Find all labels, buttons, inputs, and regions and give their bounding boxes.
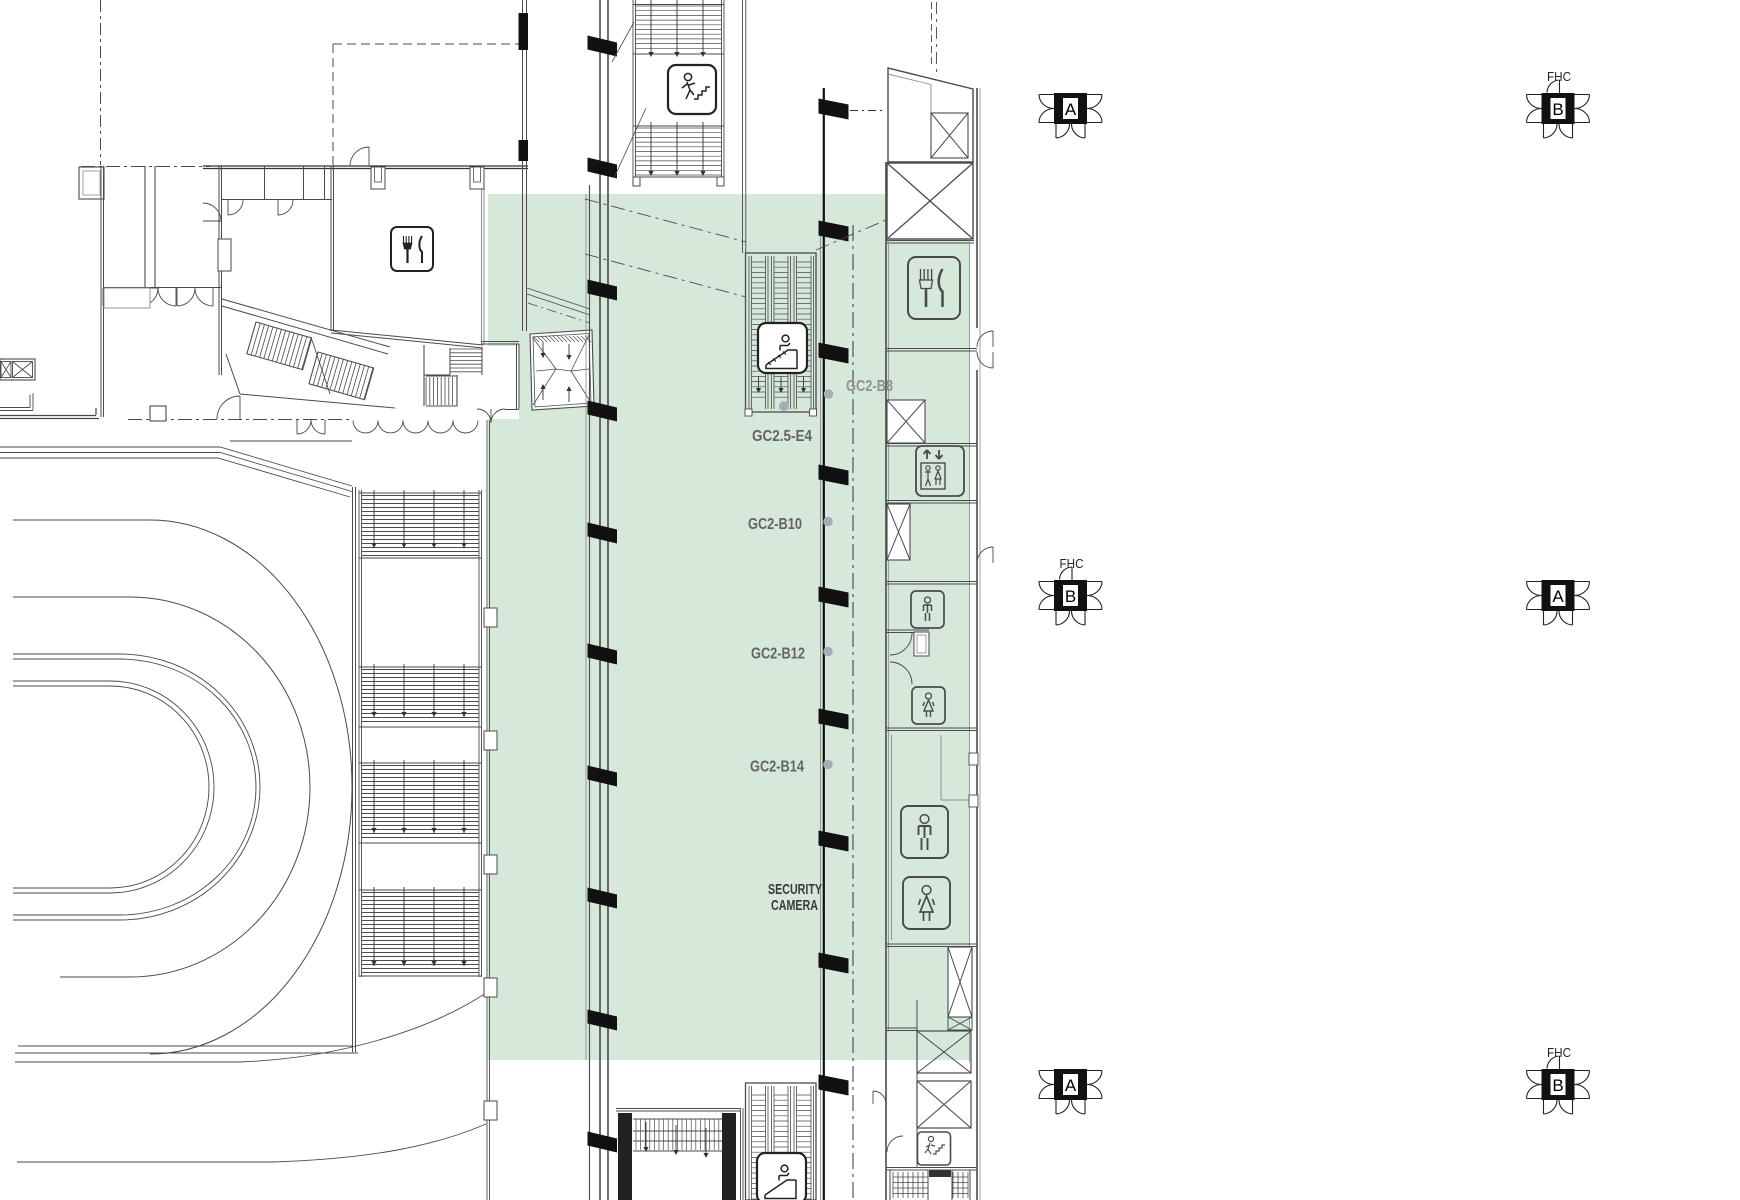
- svg-text:FHC: FHC: [1547, 69, 1571, 84]
- svg-text:GC2-B10: GC2-B10: [748, 516, 802, 533]
- svg-text:GC2-B14: GC2-B14: [750, 759, 804, 776]
- svg-text:FHC: FHC: [1060, 556, 1084, 571]
- svg-text:SECURITY: SECURITY: [768, 881, 822, 898]
- svg-text:A: A: [1552, 587, 1564, 606]
- svg-text:B: B: [1552, 1076, 1563, 1095]
- svg-text:A: A: [1065, 1076, 1077, 1095]
- svg-text:FHC: FHC: [1547, 1045, 1571, 1060]
- svg-text:GC2-B8: GC2-B8: [846, 378, 893, 395]
- svg-text:GC2.5-E4: GC2.5-E4: [752, 428, 812, 445]
- svg-text:A: A: [1065, 100, 1077, 119]
- svg-text:B: B: [1065, 587, 1076, 606]
- svg-text:CAMERA: CAMERA: [771, 897, 818, 914]
- svg-text:B: B: [1552, 100, 1563, 119]
- svg-text:GC2-B12: GC2-B12: [751, 646, 805, 663]
